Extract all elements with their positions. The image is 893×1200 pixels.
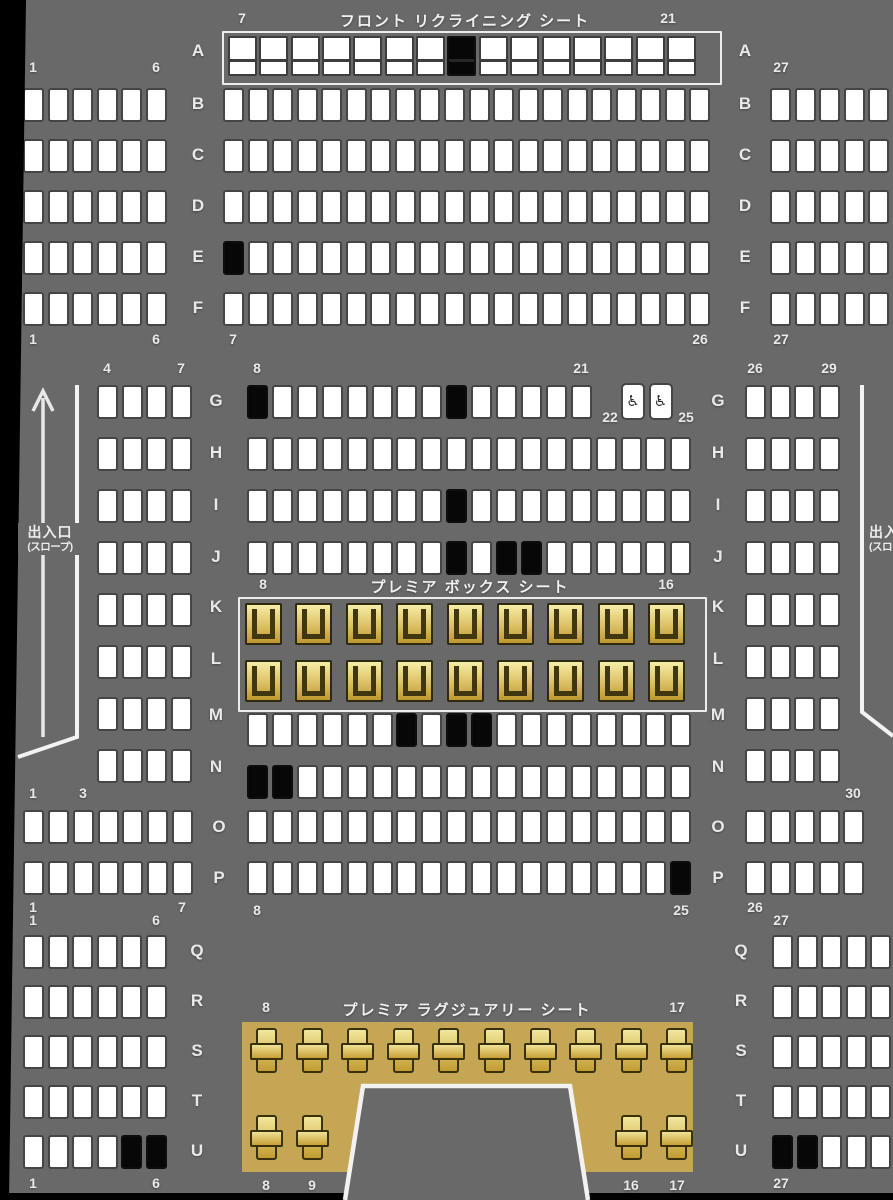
seat-O22[interactable] bbox=[596, 810, 617, 844]
seat-H16[interactable] bbox=[446, 437, 467, 471]
seat-A7[interactable] bbox=[228, 36, 257, 76]
seat-B30[interactable] bbox=[844, 88, 865, 122]
seat-O29[interactable] bbox=[819, 810, 840, 844]
seat-G20[interactable] bbox=[546, 385, 567, 419]
seat-R1[interactable] bbox=[23, 985, 44, 1019]
seat-P10[interactable] bbox=[297, 861, 318, 895]
seat-E30[interactable] bbox=[844, 241, 865, 275]
seat-C18[interactable] bbox=[493, 139, 514, 173]
seat-G4[interactable] bbox=[97, 385, 118, 419]
seat-B4[interactable] bbox=[97, 88, 118, 122]
seat-Q27[interactable] bbox=[772, 935, 793, 969]
seat-I7[interactable] bbox=[171, 489, 192, 523]
seat-L8[interactable] bbox=[245, 660, 282, 702]
seat-B1[interactable] bbox=[23, 88, 44, 122]
seat-J24[interactable] bbox=[645, 541, 666, 575]
seat-L11[interactable] bbox=[396, 660, 433, 702]
seat-M15[interactable] bbox=[421, 713, 442, 747]
seat-P22[interactable] bbox=[596, 861, 617, 895]
seat-M9[interactable] bbox=[272, 713, 293, 747]
seat-C4[interactable] bbox=[97, 139, 118, 173]
seat-G11[interactable] bbox=[322, 385, 343, 419]
seat-K28[interactable] bbox=[794, 593, 815, 627]
seat-D21[interactable] bbox=[567, 190, 588, 224]
seat-R29[interactable] bbox=[821, 985, 842, 1019]
seat-H22[interactable] bbox=[596, 437, 617, 471]
seat-F23[interactable] bbox=[616, 292, 637, 326]
seat-D3[interactable] bbox=[72, 190, 93, 224]
seat-E9[interactable] bbox=[272, 241, 293, 275]
seat-O3[interactable] bbox=[73, 810, 94, 844]
seat-F4[interactable] bbox=[97, 292, 118, 326]
seat-C23[interactable] bbox=[616, 139, 637, 173]
seat-R5[interactable] bbox=[121, 985, 142, 1019]
seat-P19[interactable] bbox=[521, 861, 542, 895]
seat-C12[interactable] bbox=[346, 139, 367, 173]
seat-T1[interactable] bbox=[23, 1085, 44, 1119]
seat-I9[interactable] bbox=[272, 489, 293, 523]
seat-K27[interactable] bbox=[770, 593, 791, 627]
seat-U8[interactable] bbox=[250, 1115, 283, 1163]
seat-F3[interactable] bbox=[72, 292, 93, 326]
seat-O1[interactable] bbox=[23, 810, 44, 844]
seat-J15[interactable] bbox=[421, 541, 442, 575]
seat-T28[interactable] bbox=[797, 1085, 818, 1119]
seat-T31[interactable] bbox=[870, 1085, 891, 1119]
seat-K4[interactable] bbox=[97, 593, 118, 627]
seat-J20[interactable] bbox=[546, 541, 567, 575]
seat-A21[interactable] bbox=[667, 36, 696, 76]
seat-E19[interactable] bbox=[518, 241, 539, 275]
seat-B3[interactable] bbox=[72, 88, 93, 122]
seat-U2[interactable] bbox=[48, 1135, 69, 1169]
seat-E24[interactable] bbox=[640, 241, 661, 275]
seat-A16[interactable] bbox=[510, 36, 539, 76]
seat-F17[interactable] bbox=[469, 292, 490, 326]
seat-K14[interactable] bbox=[547, 603, 584, 645]
seat-D20[interactable] bbox=[542, 190, 563, 224]
seat-F25[interactable] bbox=[665, 292, 686, 326]
seat-O26[interactable] bbox=[745, 810, 766, 844]
seat-K10[interactable] bbox=[346, 603, 383, 645]
seat-L14[interactable] bbox=[547, 660, 584, 702]
seat-J9[interactable] bbox=[272, 541, 293, 575]
seat-P12[interactable] bbox=[347, 861, 368, 895]
seat-C27[interactable] bbox=[770, 139, 791, 173]
seat-C31[interactable] bbox=[868, 139, 889, 173]
seat-G6[interactable] bbox=[146, 385, 167, 419]
seat-G27[interactable] bbox=[770, 385, 791, 419]
seat-B21[interactable] bbox=[567, 88, 588, 122]
seat-S8[interactable] bbox=[250, 1028, 283, 1076]
seat-E29[interactable] bbox=[819, 241, 840, 275]
seat-C21[interactable] bbox=[567, 139, 588, 173]
seat-A11[interactable] bbox=[353, 36, 382, 76]
seat-G13[interactable] bbox=[372, 385, 393, 419]
seat-E18[interactable] bbox=[493, 241, 514, 275]
seat-P7[interactable] bbox=[172, 861, 193, 895]
seat-G26[interactable] bbox=[745, 385, 766, 419]
seat-U1[interactable] bbox=[23, 1135, 44, 1169]
seat-Q30[interactable] bbox=[846, 935, 867, 969]
seat-M5[interactable] bbox=[122, 697, 143, 731]
seat-J25[interactable] bbox=[670, 541, 691, 575]
seat-J27[interactable] bbox=[770, 541, 791, 575]
seat-M26[interactable] bbox=[745, 697, 766, 731]
seat-G12[interactable] bbox=[347, 385, 368, 419]
seat-E28[interactable] bbox=[795, 241, 816, 275]
seat-N12[interactable] bbox=[347, 765, 368, 799]
seat-D7[interactable] bbox=[223, 190, 244, 224]
seat-I15[interactable] bbox=[421, 489, 442, 523]
seat-E17[interactable] bbox=[469, 241, 490, 275]
seat-G9[interactable] bbox=[272, 385, 293, 419]
seat-A12[interactable] bbox=[385, 36, 414, 76]
seat-O21[interactable] bbox=[571, 810, 592, 844]
seat-J13[interactable] bbox=[372, 541, 393, 575]
seat-A8[interactable] bbox=[259, 36, 288, 76]
seat-K29[interactable] bbox=[819, 593, 840, 627]
seat-C6[interactable] bbox=[146, 139, 167, 173]
seat-C7[interactable] bbox=[223, 139, 244, 173]
seat-S30[interactable] bbox=[846, 1035, 867, 1069]
seat-D10[interactable] bbox=[297, 190, 318, 224]
wheelchair-seat-2[interactable]: ♿ bbox=[649, 383, 673, 420]
seat-J14[interactable] bbox=[396, 541, 417, 575]
seat-B18[interactable] bbox=[493, 88, 514, 122]
seat-P13[interactable] bbox=[372, 861, 393, 895]
seat-I24[interactable] bbox=[645, 489, 666, 523]
seat-I6[interactable] bbox=[146, 489, 167, 523]
seat-G15[interactable] bbox=[421, 385, 442, 419]
seat-B20[interactable] bbox=[542, 88, 563, 122]
seat-R27[interactable] bbox=[772, 985, 793, 1019]
seat-B10[interactable] bbox=[297, 88, 318, 122]
seat-R2[interactable] bbox=[48, 985, 69, 1019]
seat-A18[interactable] bbox=[573, 36, 602, 76]
seat-N4[interactable] bbox=[97, 749, 118, 783]
seat-P1[interactable] bbox=[23, 861, 44, 895]
seat-H7[interactable] bbox=[171, 437, 192, 471]
seat-S5[interactable] bbox=[121, 1035, 142, 1069]
seat-P14[interactable] bbox=[396, 861, 417, 895]
seat-U30[interactable] bbox=[846, 1135, 867, 1169]
seat-E22[interactable] bbox=[591, 241, 612, 275]
seat-T5[interactable] bbox=[121, 1085, 142, 1119]
seat-B8[interactable] bbox=[248, 88, 269, 122]
seat-B23[interactable] bbox=[616, 88, 637, 122]
seat-S28[interactable] bbox=[797, 1035, 818, 1069]
seat-D27[interactable] bbox=[770, 190, 791, 224]
seat-C3[interactable] bbox=[72, 139, 93, 173]
seat-K26[interactable] bbox=[745, 593, 766, 627]
seat-L27[interactable] bbox=[770, 645, 791, 679]
seat-N20[interactable] bbox=[546, 765, 567, 799]
seat-H13[interactable] bbox=[372, 437, 393, 471]
seat-I11[interactable] bbox=[322, 489, 343, 523]
seat-F9[interactable] bbox=[272, 292, 293, 326]
seat-B15[interactable] bbox=[419, 88, 440, 122]
seat-H19[interactable] bbox=[521, 437, 542, 471]
seat-O25[interactable] bbox=[670, 810, 691, 844]
seat-R30[interactable] bbox=[846, 985, 867, 1019]
seat-R28[interactable] bbox=[797, 985, 818, 1019]
seat-B9[interactable] bbox=[272, 88, 293, 122]
seat-N21[interactable] bbox=[571, 765, 592, 799]
seat-L5[interactable] bbox=[122, 645, 143, 679]
seat-B19[interactable] bbox=[518, 88, 539, 122]
seat-K12[interactable] bbox=[447, 603, 484, 645]
seat-M23[interactable] bbox=[621, 713, 642, 747]
seat-I18[interactable] bbox=[496, 489, 517, 523]
seat-S9[interactable] bbox=[296, 1028, 329, 1076]
seat-B31[interactable] bbox=[868, 88, 889, 122]
seat-P5[interactable] bbox=[122, 861, 143, 895]
seat-O19[interactable] bbox=[521, 810, 542, 844]
seat-H8[interactable] bbox=[247, 437, 268, 471]
seat-H9[interactable] bbox=[272, 437, 293, 471]
seat-Q2[interactable] bbox=[48, 935, 69, 969]
seat-I8[interactable] bbox=[247, 489, 268, 523]
seat-O11[interactable] bbox=[322, 810, 343, 844]
seat-H24[interactable] bbox=[645, 437, 666, 471]
seat-K5[interactable] bbox=[122, 593, 143, 627]
seat-O15[interactable] bbox=[421, 810, 442, 844]
seat-T3[interactable] bbox=[72, 1085, 93, 1119]
seat-Q31[interactable] bbox=[870, 935, 891, 969]
seat-Q1[interactable] bbox=[23, 935, 44, 969]
seat-A10[interactable] bbox=[322, 36, 351, 76]
seat-P8[interactable] bbox=[247, 861, 268, 895]
seat-L13[interactable] bbox=[497, 660, 534, 702]
seat-D6[interactable] bbox=[146, 190, 167, 224]
seat-F27[interactable] bbox=[770, 292, 791, 326]
seat-Q3[interactable] bbox=[72, 935, 93, 969]
seat-C8[interactable] bbox=[248, 139, 269, 173]
seat-F19[interactable] bbox=[518, 292, 539, 326]
seat-J29[interactable] bbox=[819, 541, 840, 575]
seat-J23[interactable] bbox=[621, 541, 642, 575]
seat-F1[interactable] bbox=[23, 292, 44, 326]
seat-O10[interactable] bbox=[297, 810, 318, 844]
seat-G10[interactable] bbox=[297, 385, 318, 419]
seat-P20[interactable] bbox=[546, 861, 567, 895]
seat-F14[interactable] bbox=[395, 292, 416, 326]
seat-N10[interactable] bbox=[297, 765, 318, 799]
seat-O23[interactable] bbox=[621, 810, 642, 844]
seat-F20[interactable] bbox=[542, 292, 563, 326]
seat-N25[interactable] bbox=[670, 765, 691, 799]
seat-S16[interactable] bbox=[615, 1028, 648, 1076]
seat-B5[interactable] bbox=[121, 88, 142, 122]
seat-E20[interactable] bbox=[542, 241, 563, 275]
seat-E25[interactable] bbox=[665, 241, 686, 275]
seat-P17[interactable] bbox=[471, 861, 492, 895]
seat-O24[interactable] bbox=[645, 810, 666, 844]
seat-F13[interactable] bbox=[370, 292, 391, 326]
seat-G17[interactable] bbox=[471, 385, 492, 419]
seat-L12[interactable] bbox=[447, 660, 484, 702]
seat-P6[interactable] bbox=[147, 861, 168, 895]
seat-I20[interactable] bbox=[546, 489, 567, 523]
seat-T4[interactable] bbox=[97, 1085, 118, 1119]
seat-F5[interactable] bbox=[121, 292, 142, 326]
seat-K6[interactable] bbox=[146, 593, 167, 627]
seat-D26[interactable] bbox=[689, 190, 710, 224]
seat-M28[interactable] bbox=[794, 697, 815, 731]
seat-T2[interactable] bbox=[48, 1085, 69, 1119]
seat-D5[interactable] bbox=[121, 190, 142, 224]
seat-I27[interactable] bbox=[770, 489, 791, 523]
seat-A15[interactable] bbox=[479, 36, 508, 76]
seat-I19[interactable] bbox=[521, 489, 542, 523]
seat-P28[interactable] bbox=[794, 861, 815, 895]
seat-P24[interactable] bbox=[645, 861, 666, 895]
seat-B29[interactable] bbox=[819, 88, 840, 122]
seat-B16[interactable] bbox=[444, 88, 465, 122]
seat-L10[interactable] bbox=[346, 660, 383, 702]
seat-F2[interactable] bbox=[48, 292, 69, 326]
seat-U3[interactable] bbox=[72, 1135, 93, 1169]
seat-K15[interactable] bbox=[598, 603, 635, 645]
seat-E1[interactable] bbox=[23, 241, 44, 275]
seat-O7[interactable] bbox=[172, 810, 193, 844]
seat-I29[interactable] bbox=[819, 489, 840, 523]
seat-C19[interactable] bbox=[518, 139, 539, 173]
seat-C14[interactable] bbox=[395, 139, 416, 173]
seat-O5[interactable] bbox=[122, 810, 143, 844]
seat-B24[interactable] bbox=[640, 88, 661, 122]
seat-L28[interactable] bbox=[794, 645, 815, 679]
seat-B26[interactable] bbox=[689, 88, 710, 122]
seat-E27[interactable] bbox=[770, 241, 791, 275]
seat-O18[interactable] bbox=[496, 810, 517, 844]
seat-C24[interactable] bbox=[640, 139, 661, 173]
seat-D2[interactable] bbox=[48, 190, 69, 224]
seat-N7[interactable] bbox=[171, 749, 192, 783]
seat-M7[interactable] bbox=[171, 697, 192, 731]
seat-F28[interactable] bbox=[795, 292, 816, 326]
seat-H27[interactable] bbox=[770, 437, 791, 471]
seat-B28[interactable] bbox=[795, 88, 816, 122]
seat-F29[interactable] bbox=[819, 292, 840, 326]
seat-F16[interactable] bbox=[444, 292, 465, 326]
seat-B22[interactable] bbox=[591, 88, 612, 122]
seat-T29[interactable] bbox=[821, 1085, 842, 1119]
seat-H15[interactable] bbox=[421, 437, 442, 471]
seat-D28[interactable] bbox=[795, 190, 816, 224]
seat-B17[interactable] bbox=[469, 88, 490, 122]
seat-K11[interactable] bbox=[396, 603, 433, 645]
seat-J7[interactable] bbox=[171, 541, 192, 575]
seat-S10[interactable] bbox=[341, 1028, 374, 1076]
seat-P21[interactable] bbox=[571, 861, 592, 895]
seat-D8[interactable] bbox=[248, 190, 269, 224]
seat-F30[interactable] bbox=[844, 292, 865, 326]
seat-J10[interactable] bbox=[297, 541, 318, 575]
seat-D14[interactable] bbox=[395, 190, 416, 224]
seat-S4[interactable] bbox=[97, 1035, 118, 1069]
seat-C30[interactable] bbox=[844, 139, 865, 173]
seat-E14[interactable] bbox=[395, 241, 416, 275]
seat-I22[interactable] bbox=[596, 489, 617, 523]
seat-N23[interactable] bbox=[621, 765, 642, 799]
seat-E15[interactable] bbox=[419, 241, 440, 275]
seat-O2[interactable] bbox=[48, 810, 69, 844]
seat-N24[interactable] bbox=[645, 765, 666, 799]
seat-H6[interactable] bbox=[146, 437, 167, 471]
seat-H28[interactable] bbox=[794, 437, 815, 471]
seat-J26[interactable] bbox=[745, 541, 766, 575]
seat-H18[interactable] bbox=[496, 437, 517, 471]
seat-M18[interactable] bbox=[496, 713, 517, 747]
seat-E2[interactable] bbox=[48, 241, 69, 275]
seat-N18[interactable] bbox=[496, 765, 517, 799]
seat-Q4[interactable] bbox=[97, 935, 118, 969]
seat-B14[interactable] bbox=[395, 88, 416, 122]
seat-G7[interactable] bbox=[171, 385, 192, 419]
seat-N6[interactable] bbox=[146, 749, 167, 783]
seat-Q5[interactable] bbox=[121, 935, 142, 969]
seat-S27[interactable] bbox=[772, 1035, 793, 1069]
seat-S2[interactable] bbox=[48, 1035, 69, 1069]
seat-O27[interactable] bbox=[770, 810, 791, 844]
seat-C11[interactable] bbox=[321, 139, 342, 173]
seat-G28[interactable] bbox=[794, 385, 815, 419]
seat-E21[interactable] bbox=[567, 241, 588, 275]
seat-H25[interactable] bbox=[670, 437, 691, 471]
seat-D18[interactable] bbox=[493, 190, 514, 224]
seat-K7[interactable] bbox=[171, 593, 192, 627]
seat-K13[interactable] bbox=[497, 603, 534, 645]
seat-D29[interactable] bbox=[819, 190, 840, 224]
seat-M11[interactable] bbox=[322, 713, 343, 747]
seat-E16[interactable] bbox=[444, 241, 465, 275]
seat-C1[interactable] bbox=[23, 139, 44, 173]
seat-M6[interactable] bbox=[146, 697, 167, 731]
seat-S14[interactable] bbox=[524, 1028, 557, 1076]
seat-N14[interactable] bbox=[396, 765, 417, 799]
seat-F31[interactable] bbox=[868, 292, 889, 326]
seat-N26[interactable] bbox=[745, 749, 766, 783]
seat-Q6[interactable] bbox=[146, 935, 167, 969]
seat-G21[interactable] bbox=[571, 385, 592, 419]
seat-L7[interactable] bbox=[171, 645, 192, 679]
seat-H14[interactable] bbox=[396, 437, 417, 471]
seat-G18[interactable] bbox=[496, 385, 517, 419]
seat-A17[interactable] bbox=[542, 36, 571, 76]
seat-D4[interactable] bbox=[97, 190, 118, 224]
seat-I26[interactable] bbox=[745, 489, 766, 523]
seat-D17[interactable] bbox=[469, 190, 490, 224]
seat-N13[interactable] bbox=[372, 765, 393, 799]
seat-C10[interactable] bbox=[297, 139, 318, 173]
seat-L29[interactable] bbox=[819, 645, 840, 679]
seat-N19[interactable] bbox=[521, 765, 542, 799]
seat-J28[interactable] bbox=[794, 541, 815, 575]
seat-I5[interactable] bbox=[122, 489, 143, 523]
seat-N17[interactable] bbox=[471, 765, 492, 799]
seat-B7[interactable] bbox=[223, 88, 244, 122]
seat-O13[interactable] bbox=[372, 810, 393, 844]
seat-C29[interactable] bbox=[819, 139, 840, 173]
seat-E4[interactable] bbox=[97, 241, 118, 275]
seat-C13[interactable] bbox=[370, 139, 391, 173]
seat-U29[interactable] bbox=[821, 1135, 842, 1169]
seat-J22[interactable] bbox=[596, 541, 617, 575]
seat-U16[interactable] bbox=[615, 1115, 648, 1163]
seat-D16[interactable] bbox=[444, 190, 465, 224]
